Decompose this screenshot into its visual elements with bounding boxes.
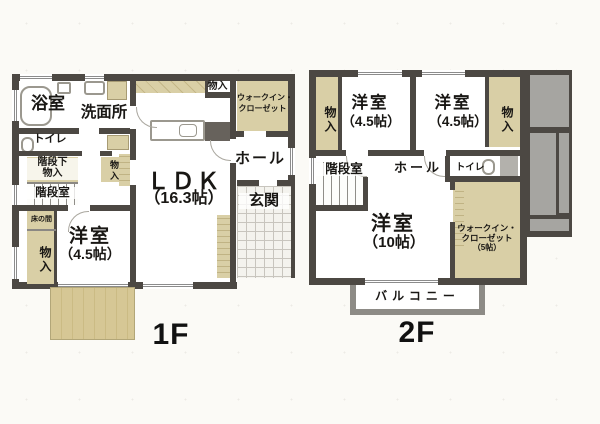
floorplan-2f: 物入 洋室 （4.5帖） 洋室 （4.5帖） 物入 階段室 ホール トイレ 洋室…	[309, 70, 527, 285]
room-label-western-room: 洋室	[55, 227, 125, 247]
window	[422, 70, 465, 77]
floor-label-1f: 1F	[138, 318, 204, 352]
room-label-stairwell: 階段室	[27, 187, 78, 199]
roof-panel	[559, 133, 569, 213]
window	[365, 278, 438, 285]
floorplan-page: 浴室 洗面所 トイレ 階段下 物入 階段室 床の間 物入 物入 洋室 （4.5帖…	[0, 0, 600, 424]
room-label-room-c: 洋室	[363, 214, 423, 235]
room-label-closet-right: 物入	[495, 99, 513, 141]
wall	[27, 229, 56, 231]
window	[85, 74, 104, 81]
door-opening	[244, 131, 266, 137]
room-label-hall: ホール	[388, 161, 448, 175]
room-label-wic-size: （5帖）	[467, 244, 507, 252]
washbasin	[84, 81, 105, 95]
door-swing-arc	[210, 140, 231, 161]
door-opening	[79, 128, 99, 134]
room-label-wic-line2: クローゼット	[237, 105, 288, 113]
room-label-room-a-size: （4.5帖）	[333, 115, 409, 129]
room-label-wic-line1: ウォークイン・	[455, 224, 519, 233]
room-label-room-c-size: （10帖）	[354, 235, 434, 251]
room-label-bathroom: 浴室	[19, 95, 77, 113]
wall	[445, 176, 520, 182]
wall	[230, 81, 236, 282]
room-label-toilet: トイレ	[448, 163, 492, 173]
roof-panel	[530, 133, 556, 215]
room-label-understair-storage: 階段下	[27, 158, 78, 169]
window	[358, 70, 402, 77]
wall	[485, 77, 489, 147]
wall	[450, 182, 455, 190]
window	[12, 185, 19, 205]
balcony: バルコニー	[350, 285, 485, 315]
roof-panel	[530, 75, 569, 127]
wall	[237, 180, 259, 186]
room-label-room-b: 洋室	[423, 95, 483, 112]
wall	[205, 92, 230, 98]
room-label-wic-line2: クローゼット	[457, 234, 517, 243]
wall	[27, 182, 78, 184]
room-label-toilet: トイレ	[21, 134, 79, 146]
kitchen-cabinet-fill	[133, 81, 207, 93]
wood-deck	[50, 287, 135, 340]
washroom-cabinet	[107, 135, 129, 150]
room-label-entrance: 玄関	[239, 193, 289, 209]
wall	[277, 180, 288, 186]
room-label-wic-line1: ウォークイン・	[237, 94, 288, 102]
roof-panel	[530, 219, 569, 231]
room-label-closet-mid: 物入	[102, 159, 118, 182]
bath-counter	[57, 82, 71, 94]
room-label-balcony: バルコニー	[356, 290, 479, 303]
kitchen-sink	[179, 124, 197, 137]
wall	[363, 177, 368, 205]
roof-area	[527, 70, 572, 237]
door-swing-arc	[136, 107, 157, 128]
room-label-room-a: 洋室	[340, 95, 400, 112]
room-label-washroom: 洗面所	[75, 105, 133, 121]
room-label-hall: ホール	[233, 151, 288, 167]
room-label-ldk-size: （16.3帖）	[134, 191, 234, 208]
room-label-tokonoma: 床の間	[27, 216, 56, 223]
door-opening	[130, 160, 136, 185]
room-label-understair-storage2: 物入	[27, 169, 78, 180]
floor-label-2f: 2F	[390, 316, 444, 350]
washing-machine	[107, 81, 127, 100]
door-opening	[82, 151, 100, 156]
room-label-stairwell: 階段室	[316, 163, 372, 176]
window	[20, 74, 52, 81]
room-label-room-b-size: （4.5帖）	[420, 115, 496, 129]
kitchen-stove-block	[205, 122, 230, 141]
wall	[316, 205, 368, 211]
room-label-western-room-size: （4.5帖）	[45, 247, 135, 262]
window	[143, 282, 193, 289]
room-label-closet-top: 物入	[205, 82, 230, 93]
window	[12, 247, 19, 279]
porch-opening	[237, 278, 295, 296]
window	[12, 90, 19, 121]
window	[288, 148, 295, 175]
window	[309, 158, 316, 184]
wall	[410, 77, 416, 150]
floorplan-1f: 浴室 洗面所 トイレ 階段下 物入 階段室 床の間 物入 物入 洋室 （4.5帖…	[12, 74, 295, 289]
shoe-cabinet-fill	[217, 215, 230, 278]
